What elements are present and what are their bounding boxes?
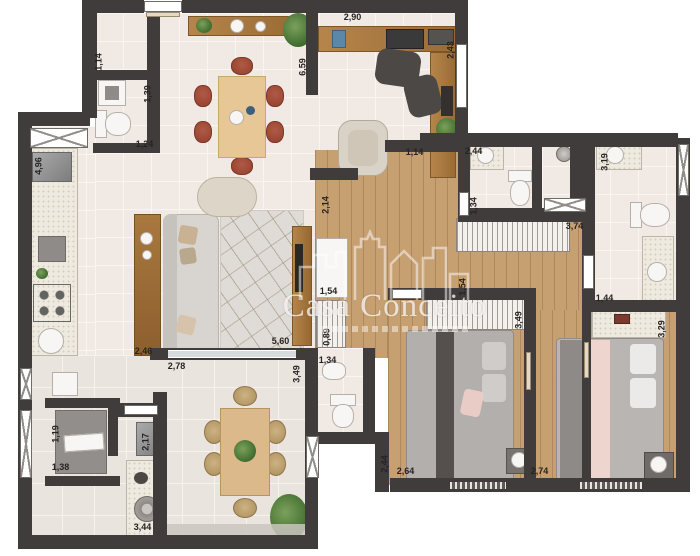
dim-label: 3,49 <box>514 308 524 333</box>
dim-label: 4,96 <box>34 154 44 179</box>
dim-label: 2,74 <box>527 466 552 476</box>
vanity-sink <box>647 262 667 282</box>
monitor <box>441 86 453 116</box>
dim-label: 1,39 <box>143 82 153 107</box>
dim-label: 3,44 <box>130 522 155 532</box>
door-opening <box>583 255 594 289</box>
office-window <box>456 44 467 108</box>
armchair-cushion <box>348 130 378 166</box>
pillow <box>178 225 199 246</box>
dining-chair <box>194 85 212 107</box>
dim-label: 1,34 <box>469 194 479 219</box>
pillow <box>482 342 506 370</box>
dim-label: 2,44 <box>461 146 486 156</box>
decor-art <box>332 30 346 48</box>
dim-label: 1,14 <box>94 50 104 75</box>
dining-chair <box>231 157 253 175</box>
sliding-glass-door <box>168 350 296 358</box>
dim-label: 2,43 <box>446 38 456 63</box>
pillow <box>630 378 656 408</box>
balcony-chair <box>233 386 257 406</box>
wall <box>18 535 318 549</box>
toilet <box>332 404 354 428</box>
toilet <box>640 203 670 227</box>
dim-label: 1,14 <box>402 147 427 157</box>
wall <box>108 398 118 456</box>
tv <box>614 314 630 324</box>
bedroom-window <box>448 480 508 491</box>
toilet <box>105 112 131 136</box>
plant-icon <box>36 268 48 279</box>
decor-plate <box>142 250 152 260</box>
dining-chair <box>194 121 212 143</box>
door-opening <box>459 192 469 216</box>
window-x-icon <box>544 198 586 212</box>
stove <box>33 284 71 322</box>
dim-label: 3,74 <box>562 221 587 231</box>
sofa-backrest <box>163 214 177 356</box>
dim-label: 1,34 <box>315 355 340 365</box>
toilet <box>510 180 530 206</box>
plant-icon <box>234 440 256 462</box>
wall <box>45 476 120 486</box>
wall <box>310 168 358 180</box>
wall <box>306 13 318 95</box>
bed-runner <box>436 332 454 480</box>
dim-label: 1,24 <box>132 139 157 149</box>
window-x-icon <box>306 436 319 478</box>
dim-label: 2,46 <box>131 346 156 356</box>
dim-label: 2,44 <box>380 452 390 477</box>
wall <box>582 312 591 480</box>
dim-label: 5,60 <box>268 336 293 346</box>
floor-plan: 1,14 1,39 1,24 4,96 6,59 2,90 2,43 1,14 … <box>0 0 700 556</box>
pillow <box>482 374 506 402</box>
round-basin <box>38 328 64 354</box>
laptop <box>386 29 424 49</box>
window-x-icon <box>20 368 32 400</box>
dim-label: 3,19 <box>600 150 610 175</box>
door-leaf-icon <box>526 352 531 390</box>
window-x-icon <box>678 144 689 196</box>
dim-label: 2,90 <box>340 12 365 22</box>
dining-chair <box>266 85 284 107</box>
dim-label: 1,19 <box>51 422 61 447</box>
pillow <box>179 247 197 265</box>
dim-label: 1,38 <box>48 462 73 472</box>
service-window <box>124 405 158 415</box>
decor-plate <box>140 232 153 245</box>
wall <box>18 112 32 549</box>
kitchen-sink <box>38 236 66 262</box>
door-leaf-icon <box>584 342 589 378</box>
decor-vase <box>229 110 244 125</box>
wall <box>532 138 542 210</box>
dim-label: 2,78 <box>164 361 189 371</box>
watermark-subtext <box>322 326 468 332</box>
decor-plate <box>255 21 266 32</box>
dim-label: 1,44 <box>592 293 617 303</box>
wall <box>390 478 690 492</box>
bedroom-window <box>578 480 644 491</box>
pillow <box>630 344 656 374</box>
bed-blanket <box>560 340 584 482</box>
lounge-chair <box>197 177 257 217</box>
watermark-title: Casa Conceito <box>270 288 500 325</box>
dim-label: 2,14 <box>321 193 331 218</box>
dim-label: 3,49 <box>292 362 302 387</box>
window-x-icon <box>20 410 32 478</box>
plant-icon <box>196 18 212 33</box>
decor-cup <box>246 106 255 115</box>
decor-plate <box>230 19 244 33</box>
dining-chair <box>266 121 284 143</box>
entry-opening <box>144 1 182 12</box>
balcony-chair <box>233 498 257 518</box>
dining-chair <box>231 57 253 75</box>
dim-label: 3,29 <box>657 317 667 342</box>
sink-small <box>134 472 148 484</box>
dim-label: 6,59 <box>298 55 308 80</box>
ironing-board <box>63 433 104 453</box>
wall <box>182 0 468 13</box>
wall <box>315 432 375 444</box>
sink-basin <box>105 86 119 100</box>
dim-label: 2,64 <box>393 466 418 476</box>
dim-label: 2,17 <box>141 430 151 455</box>
door-leaf-icon <box>146 12 180 17</box>
wall <box>363 348 375 444</box>
laundry-tub <box>52 372 78 396</box>
lamp-icon <box>650 456 667 473</box>
window-x-icon <box>30 128 88 148</box>
